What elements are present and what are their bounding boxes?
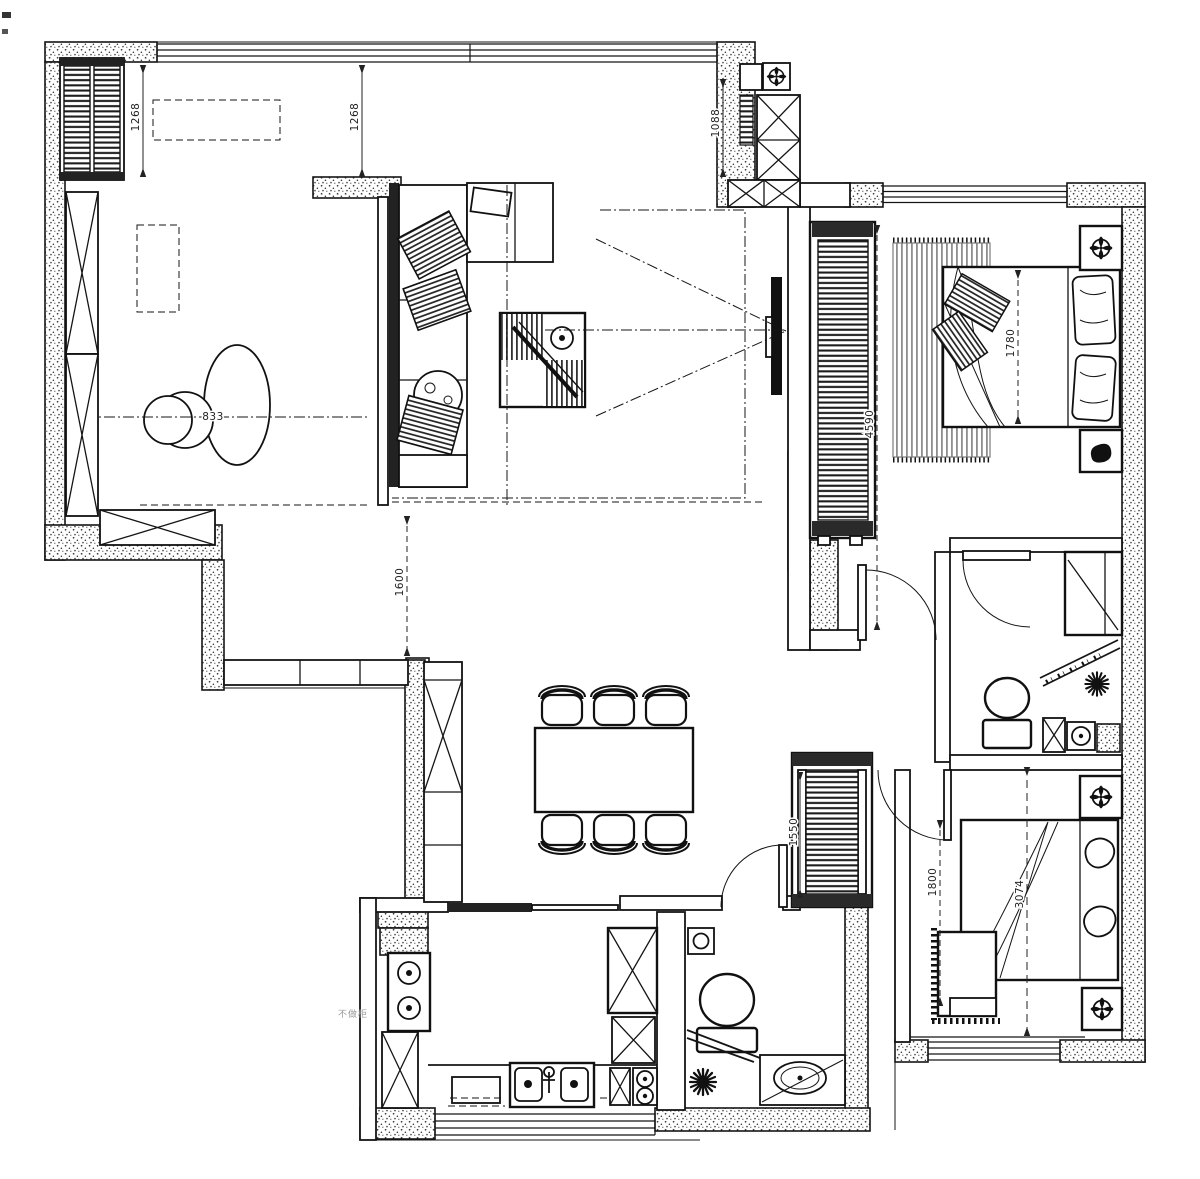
window-band-master [883,186,1067,203]
floor-drain-star-icon [690,1069,716,1095]
water-heater-icon [688,928,714,954]
meter-box [740,64,762,90]
kitchen-sink-icon [510,1063,594,1107]
tall-cabinet-x-icon [424,662,462,902]
dim-corridor: 1600 [394,516,407,656]
door-swing-icon [878,770,951,840]
scan-artifact [2,29,8,34]
cooktop-icon [633,1068,657,1105]
dining-area [424,662,693,902]
door-swing-icon [858,565,936,640]
pillow-icon [1085,838,1114,867]
double-bed-icon [933,267,1120,427]
svg-text:1268: 1268 [349,103,361,132]
dim-study-bay-left: 1268 [130,65,143,177]
coffee-table-icon [500,313,585,407]
pillow-icon [1072,355,1116,422]
scan-artifact [2,12,11,18]
floor-drain-star-icon [1085,672,1108,695]
dim-study-table: 833 [202,411,224,423]
svg-text:1088: 1088 [710,109,722,138]
washbasin-icon [760,1055,845,1105]
round-table-icon [144,345,270,465]
duct-louver [740,95,753,145]
dimensions: 1268 1268 1088 1600 833 4590 1780 1550 1… [130,65,1027,1036]
ac-louver-icon [60,58,124,180]
dim-bed2-depth: 3074 [1014,767,1027,1036]
master-bedroom [810,222,1122,545]
floor-plan-canvas: 1268 1268 1088 1600 833 4590 1780 1550 1… [0,0,1200,1179]
sliding-door-icon [448,903,618,912]
cabinet-dashed [137,225,179,312]
gas-stove-icon [388,953,430,1031]
svg-text:833: 833 [202,411,224,423]
svg-text:1268: 1268 [130,103,142,132]
svg-text:1800: 1800 [927,868,939,897]
window-band-bedroom2 [928,1042,1060,1060]
annotations: 不做柜 [338,1008,368,1020]
tall-cabinet-x-icon [66,192,215,545]
dining-table-icon [535,728,693,812]
window-band-kitchen [435,1114,655,1135]
kitchen-vent [380,928,428,955]
window-band-top [157,44,717,62]
svg-text:1550: 1550 [788,818,800,847]
door-swing-icon [963,551,1030,627]
desk-icon [932,928,1000,1021]
cutting-board-icon [448,1077,505,1106]
svg-text:1600: 1600 [394,568,406,597]
svg-text:4590: 4590 [864,410,876,439]
cabinet-x-icon [382,1032,418,1108]
common-bathroom [687,928,845,1105]
dim-study-bay-right: 1268 [349,65,362,177]
nightstand-icon [1080,226,1122,270]
door-swing-icon [721,845,787,907]
nightstand-icon [1082,988,1122,1030]
wardrobe-louver-icon [810,222,875,545]
nightstand-icon [1080,776,1122,818]
pillow-icon [1072,275,1116,345]
toilet-icon [697,974,757,1052]
pillow-icon [1084,906,1116,936]
toilet-icon [983,678,1031,748]
floor-plan-svg: 1268 1268 1088 1600 833 4590 1780 1550 1… [0,0,1200,1179]
nightstand-icon [1080,430,1122,472]
kitchen [380,903,657,1108]
ceiling-feature-dashed [153,100,280,140]
svg-text:3074: 3074 [1014,880,1026,909]
vanity-row [1043,718,1120,752]
living-room [389,183,786,505]
study-room [60,58,370,545]
hall-closet [792,753,872,907]
kitchen-wall-note: 不做柜 [338,1008,368,1020]
wardrobe-louver-icon [792,753,872,907]
shower-cabinet-icon [1065,552,1122,635]
svg-text:1780: 1780 [1005,329,1017,358]
master-bathroom [983,552,1122,752]
